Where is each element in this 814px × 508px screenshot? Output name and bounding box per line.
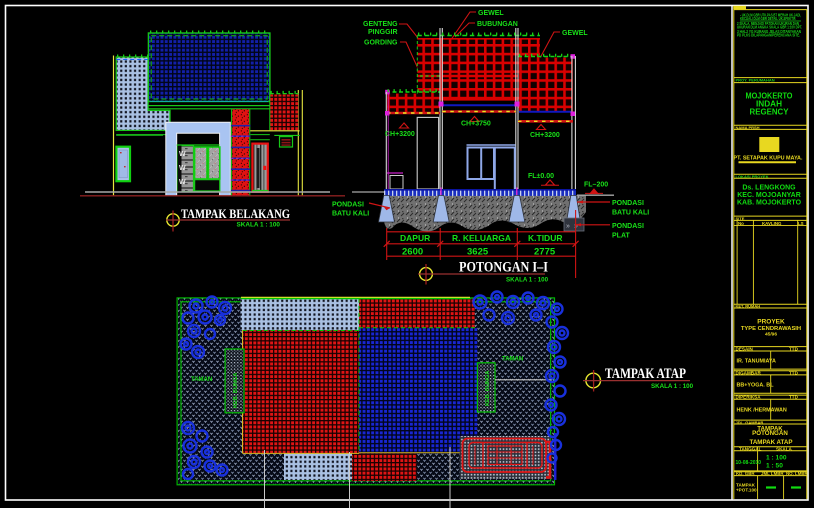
svg-text:KAB. MOJOKERTO: KAB. MOJOKERTO (737, 200, 802, 207)
svg-text:Ds. LENGKONG: Ds. LENGKONG (742, 184, 796, 191)
svg-text:CH+3200: CH+3200 (530, 132, 560, 139)
svg-text:W: W (179, 179, 186, 186)
svg-text:FL–200: FL–200 (584, 182, 608, 189)
svg-text:TAMAN: TAMAN (191, 377, 212, 383)
svg-text:W: W (179, 165, 186, 172)
svg-text:PONDASI: PONDASI (612, 223, 644, 230)
svg-text:KAVLING: KAVLING (762, 221, 782, 226)
svg-text:2775: 2775 (534, 247, 556, 258)
svg-text:SKALA 1 : 100: SKALA 1 : 100 (506, 277, 549, 284)
svg-text:LS: LS (798, 221, 804, 226)
svg-text:HENK /HERMAWAN: HENK /HERMAWAN (737, 408, 787, 414)
svg-text:PT. SETAPAK KUPU MAYA.: PT. SETAPAK KUPU MAYA. (734, 156, 803, 162)
svg-text:PROYEK: PROYEK (757, 319, 785, 326)
svg-text:BUBUNGAN: BUBUNGAN (477, 21, 518, 28)
svg-text:TAMPAK BELAKANG: TAMPAK BELAKANG (181, 207, 290, 221)
svg-text:W: W (179, 151, 186, 158)
svg-text:+POT.100: +POT.100 (736, 488, 757, 493)
svg-text:No: No (738, 221, 744, 226)
svg-text:TAMPAK ATAP: TAMPAK ATAP (750, 439, 793, 446)
svg-text:SKALA 1 : 100: SKALA 1 : 100 (237, 221, 281, 228)
svg-text:POTONGAN: POTONGAN (752, 430, 788, 437)
svg-text:PLAT: PLAT (612, 233, 630, 240)
svg-text:IR. TANUMIAYA: IR. TANUMIAYA (737, 359, 776, 365)
svg-text:KECUALI DLM GBR DETAIL UK.EFEK: KECUALI DLM GBR DETAIL UK.EFEKTIF. (740, 16, 796, 21)
svg-text:TAMAN: TAMAN (502, 357, 523, 363)
svg-text:TAMPAK ATAP: TAMPAK ATAP (605, 366, 686, 382)
svg-text:KEB. BUNGA: KEB. BUNGA (233, 373, 239, 408)
svg-text:TYPE CENDRAWASIH: TYPE CENDRAWASIH (741, 326, 801, 332)
svg-text:»: » (566, 223, 570, 230)
svg-text:PROY. PERUMAHAN: PROY. PERUMAHAN (736, 78, 775, 83)
svg-text:KEC. MOJOANYAR: KEC. MOJOANYAR (737, 192, 801, 199)
svg-text:PD PLKS DILAPANGAN/PERENCANA S: PD PLKS DILAPANGAN/PERENCANA SITE. (737, 33, 800, 38)
svg-text:R. KELUARGA: R. KELUARGA (452, 233, 511, 243)
svg-text:BB+YOGA. BL: BB+YOGA. BL (737, 383, 775, 389)
svg-text:2600: 2600 (402, 247, 423, 258)
svg-text:GEWEL: GEWEL (562, 30, 588, 37)
svg-text:PONDASI: PONDASI (612, 200, 644, 207)
svg-text:10-08-2010: 10-08-2010 (736, 460, 762, 466)
svg-text:CH+3200: CH+3200 (385, 131, 415, 138)
svg-text:REGENCY: REGENCY (750, 106, 789, 116)
svg-text:FL±0.00: FL±0.00 (528, 173, 554, 180)
svg-text:1 : 100: 1 : 100 (766, 455, 787, 462)
svg-text:GORDING: GORDING (364, 40, 398, 47)
svg-text:CH+3750: CH+3750 (461, 121, 491, 128)
svg-text:KEB. BUNGA: KEB. BUNGA (485, 371, 491, 406)
svg-text:PINGGIR: PINGGIR (368, 29, 398, 36)
svg-text:GEWEL: GEWEL (478, 10, 504, 17)
svg-text:POTONGAN I–I: POTONGAN I–I (459, 260, 548, 276)
svg-text:BATU KALI: BATU KALI (612, 210, 649, 217)
svg-text:BATU KALI: BATU KALI (332, 211, 369, 218)
svg-text:3625: 3625 (467, 247, 489, 258)
svg-text:45/96: 45/96 (765, 332, 777, 338)
svg-text:K.TIDUR: K.TIDUR (528, 233, 562, 243)
svg-text:PONDASI: PONDASI (332, 202, 364, 209)
svg-text:DAPUR: DAPUR (400, 233, 430, 243)
svg-text:SKALA 1 : 100: SKALA 1 : 100 (651, 383, 694, 390)
svg-text:1 : 50: 1 : 50 (766, 463, 783, 470)
svg-text:GENTENG: GENTENG (363, 21, 398, 28)
